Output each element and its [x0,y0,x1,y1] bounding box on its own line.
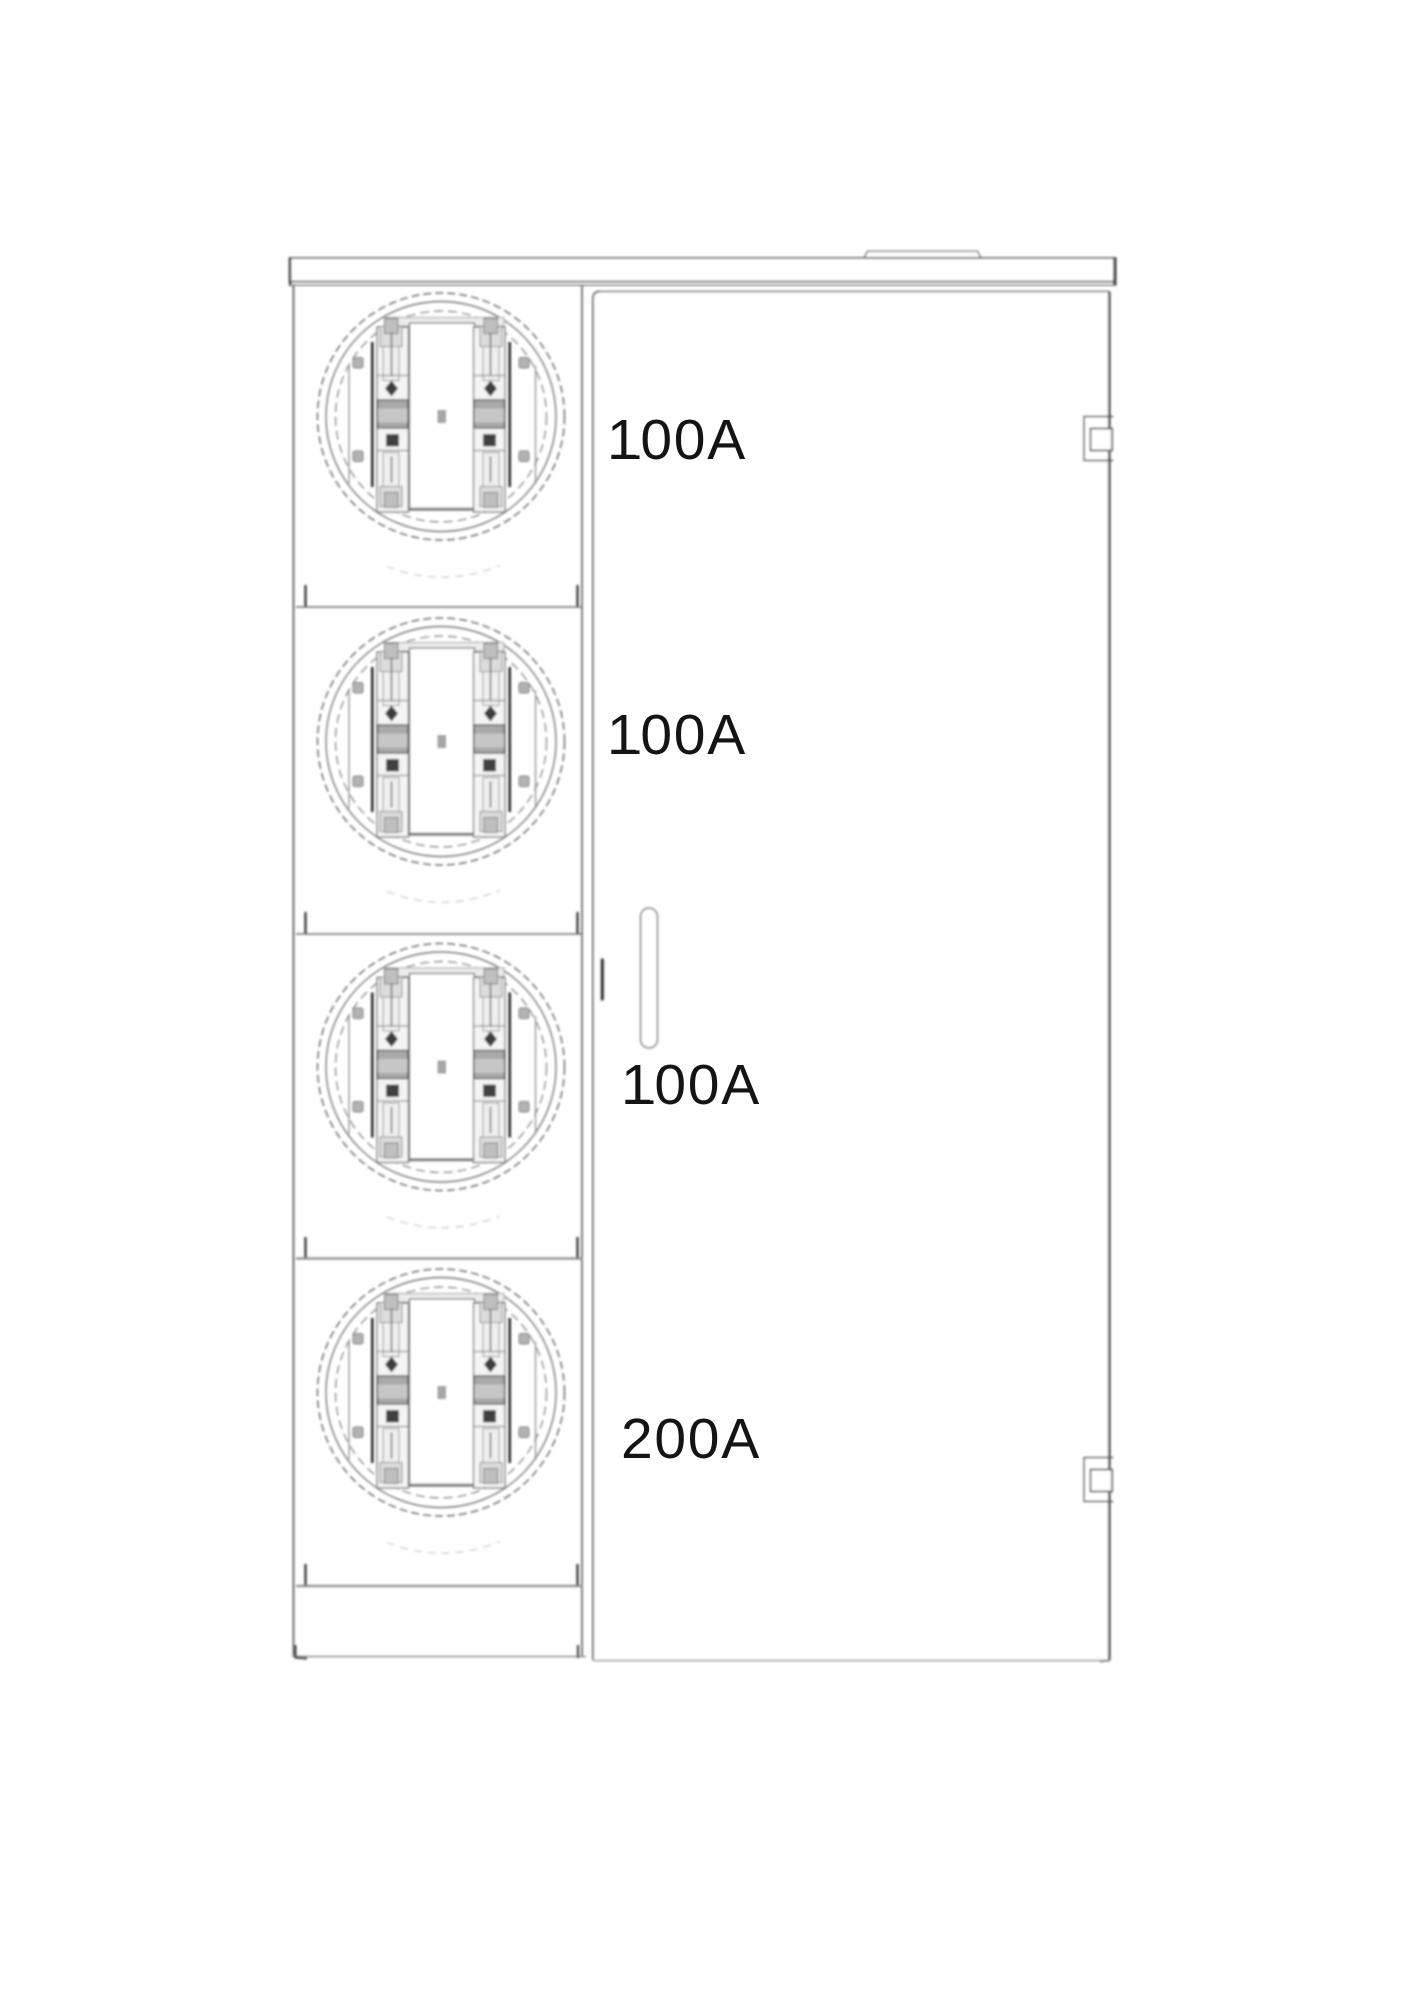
svg-text:200A: 200A [621,1407,761,1471]
svg-text:100A: 100A [607,703,747,767]
svg-text:100A: 100A [621,1053,761,1117]
svg-text:100A: 100A [607,408,747,472]
